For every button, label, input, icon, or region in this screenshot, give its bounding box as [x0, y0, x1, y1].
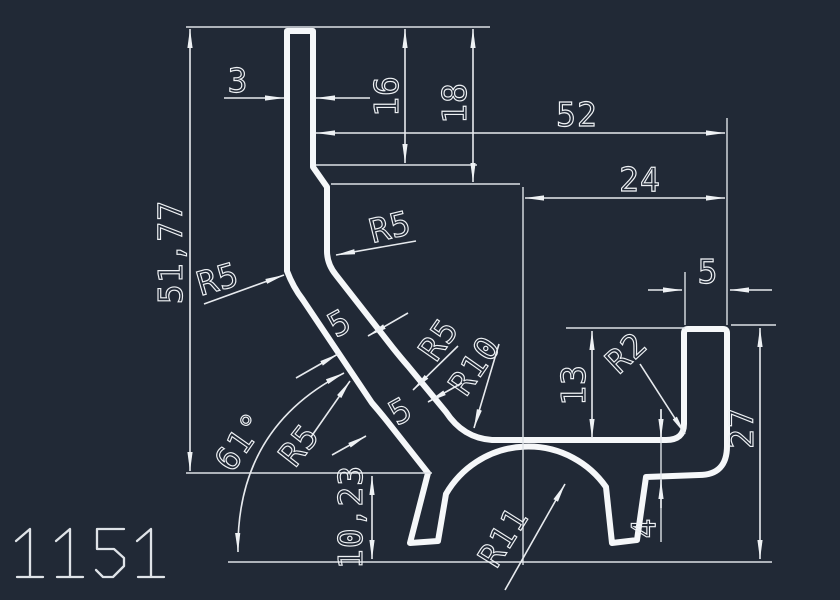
part-number [16, 529, 164, 577]
leader-r5-top: R5 [336, 203, 416, 255]
part-number-value: 1151 [90, 595, 93, 597]
dimension-18: 18 [435, 29, 474, 182]
dimension-13: 13 [554, 331, 593, 438]
dimension-51-77: 51,77 [151, 29, 190, 471]
cad-drawing-canvas: 3 16 18 52 24 5 13 27 4 51,77 [0, 0, 840, 600]
dim-5-lower-left-arrow [332, 436, 366, 455]
leader-r2: R2 [598, 324, 685, 434]
dimension-61-angle: 61° [207, 373, 344, 552]
leader-r5-left-label: R5 [192, 254, 243, 303]
dim-10-23-label: 10,23 [331, 465, 370, 569]
dim-61-label: 61° [207, 405, 275, 479]
leader-r5-bottom: R5 [271, 381, 350, 473]
part-number-digit-1b [56, 529, 83, 577]
dimension-5-lower: 5 [332, 383, 462, 455]
dim-51-77-label: 51,77 [151, 200, 190, 304]
dimension-24: 24 [525, 160, 725, 199]
part-number-digit-5 [96, 529, 124, 577]
extension-lines [186, 27, 776, 565]
dim-16-label: 16 [367, 75, 406, 117]
dim-4-label: 4 [624, 518, 663, 539]
leader-r11: R11 [470, 484, 565, 590]
dimension-5-wall: 5 [648, 252, 772, 291]
dimension-10-23: 10,23 [331, 465, 372, 569]
dim-27-label: 27 [722, 407, 761, 449]
dim-5-lower-label: 5 [382, 389, 419, 433]
dimension-3: 3 [224, 61, 370, 100]
leader-r11-label: R11 [470, 500, 536, 574]
dimension-16: 16 [367, 29, 406, 163]
part-number-digit-1a [16, 529, 43, 577]
dim-5-wall-label: 5 [698, 252, 719, 291]
part-number-digit-1c [137, 529, 164, 577]
dim-24-label: 24 [619, 160, 661, 199]
dim-3-label: 3 [228, 61, 249, 100]
leader-r5-left: R5 [192, 254, 284, 304]
dim-18-label: 18 [435, 82, 474, 124]
cad-drawing: 3 16 18 52 24 5 13 27 4 51,77 [0, 0, 840, 600]
dim-52-label: 52 [556, 95, 598, 134]
leader-r2-line [640, 364, 685, 434]
leader-r5-top-label: R5 [365, 203, 415, 251]
dim-13-label: 13 [554, 364, 593, 406]
dim-5-upper-left-arrow [296, 354, 338, 378]
